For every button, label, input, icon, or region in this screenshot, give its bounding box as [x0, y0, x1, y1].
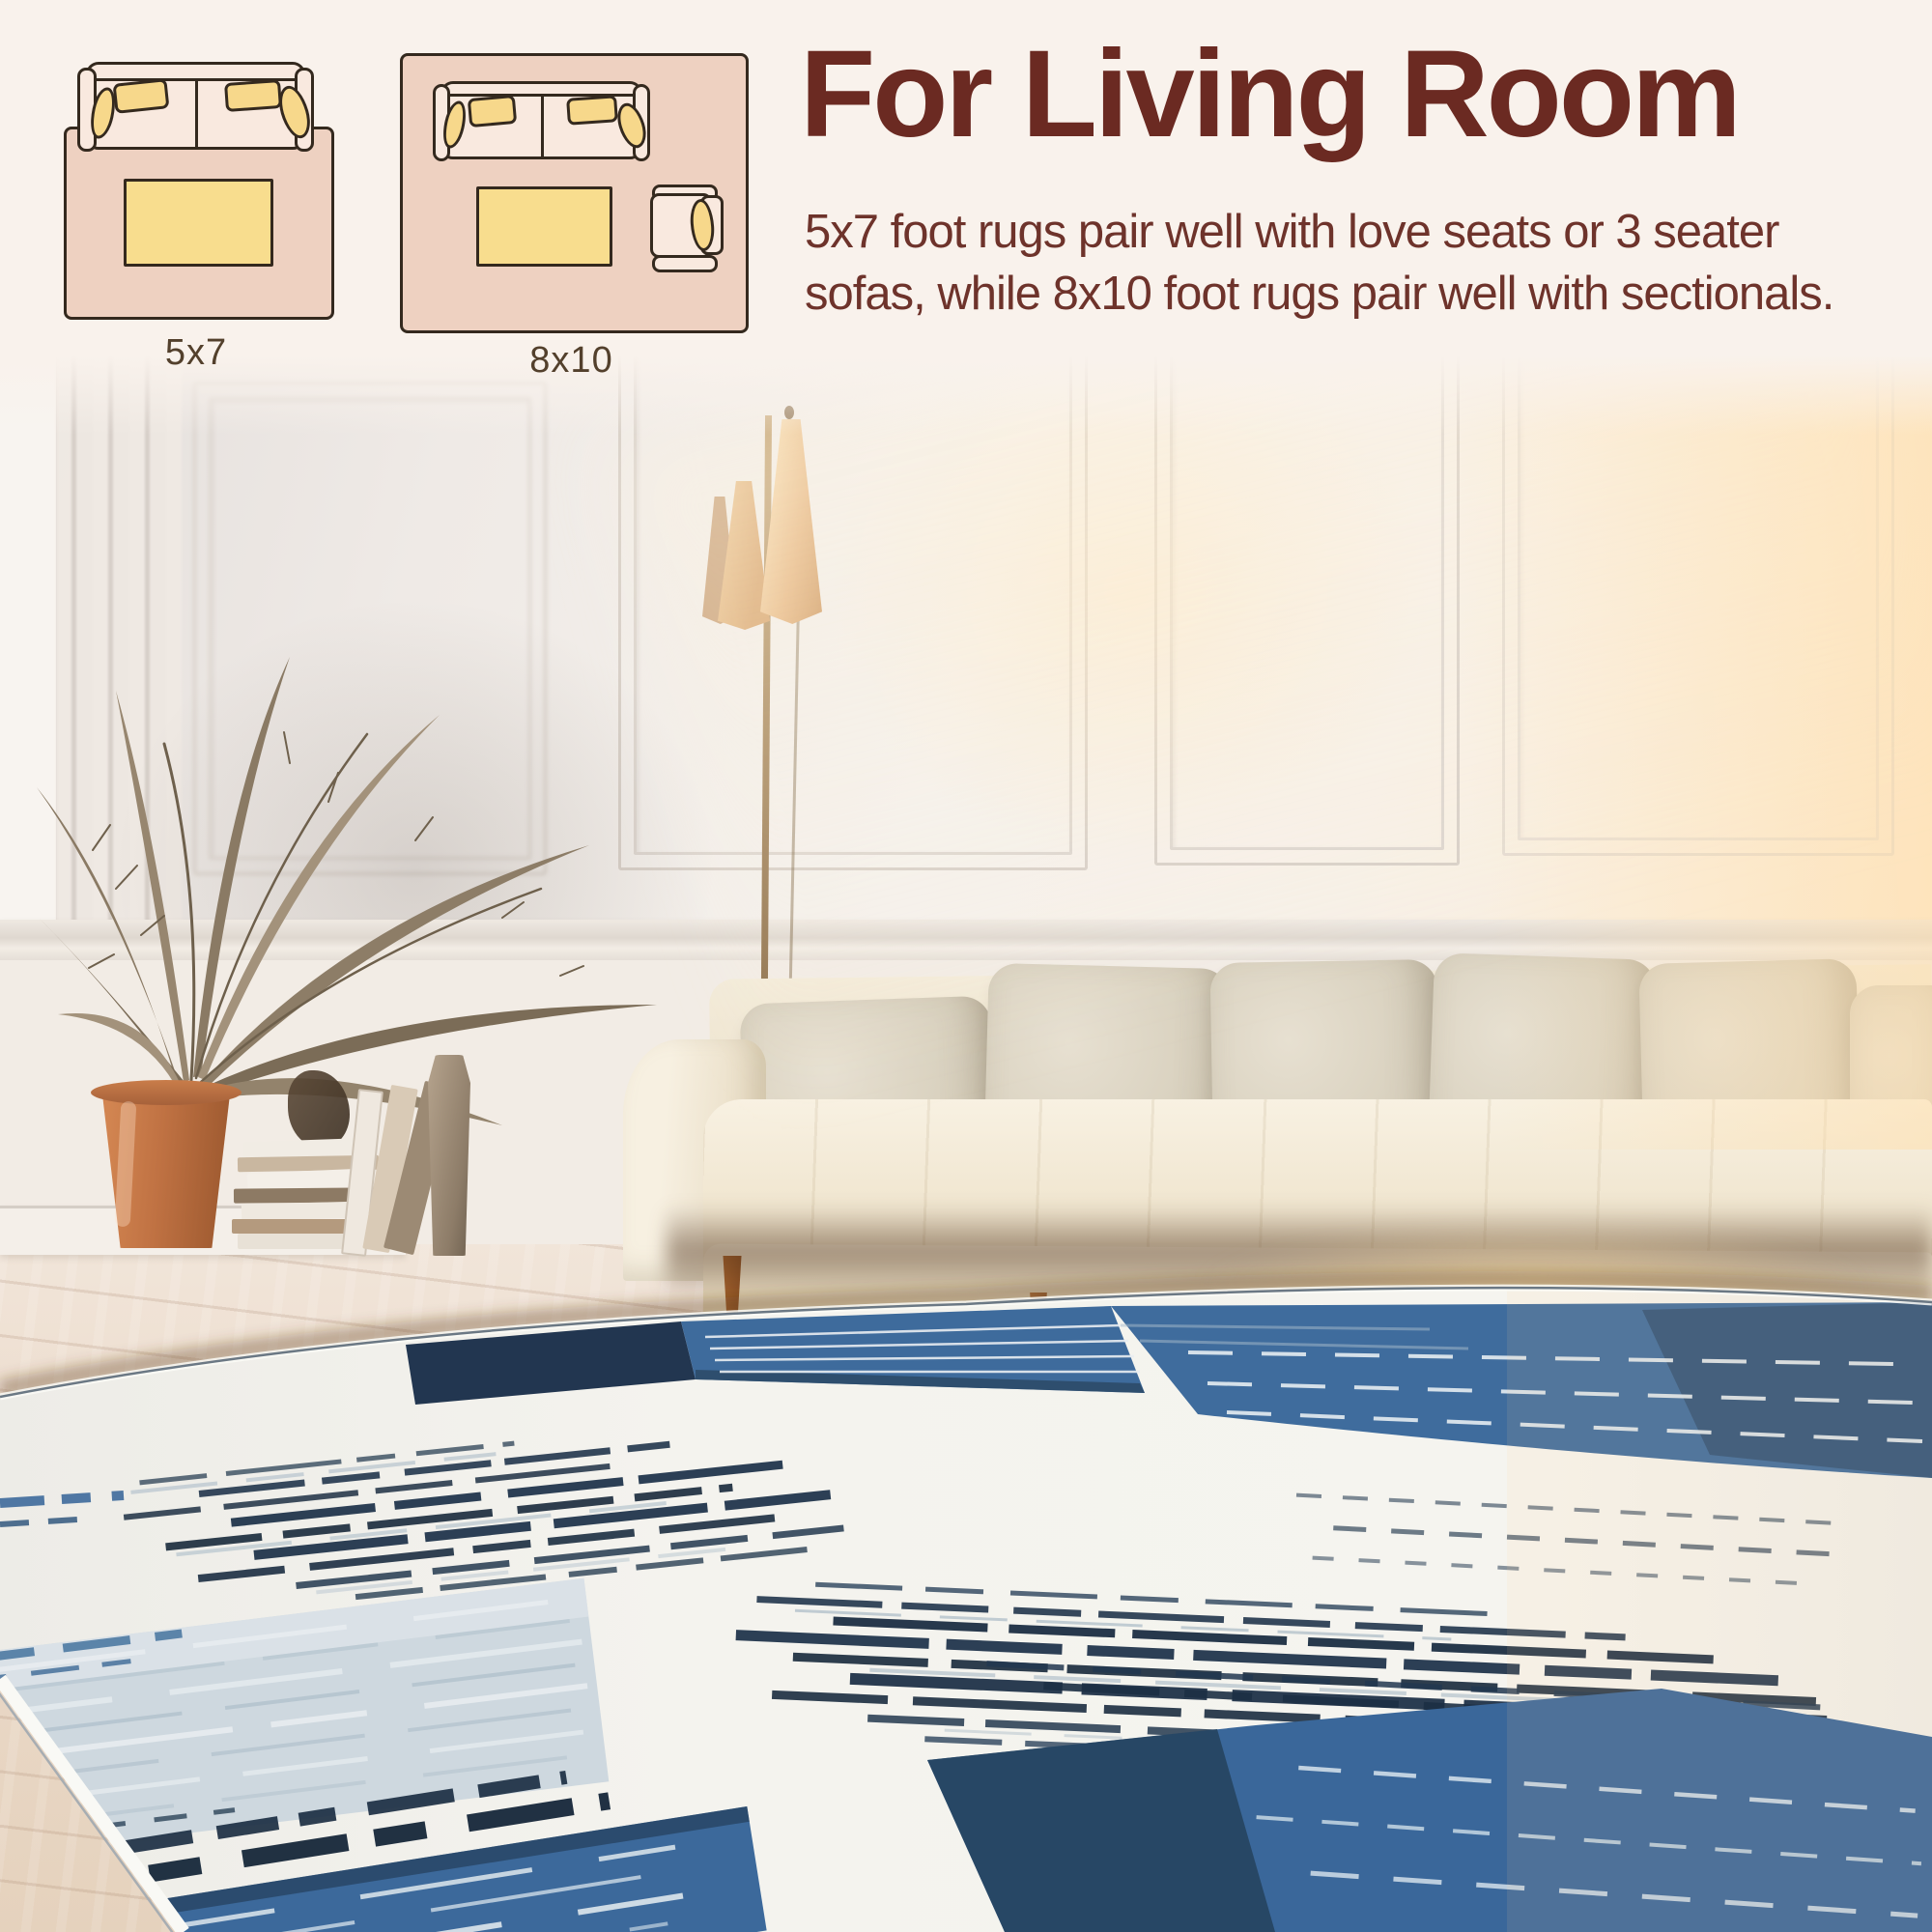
description-line-1: 5x7 foot rugs pair well with love seats … [805, 205, 1778, 259]
diagram-pillow [224, 79, 282, 112]
diagram-pillow [566, 95, 618, 126]
diagram-label-8x10: 8x10 [400, 340, 743, 382]
diagram-pillow [113, 78, 170, 114]
page-title: For Living Room [800, 27, 1901, 163]
diagram-coffee-table [476, 186, 612, 267]
description-line-2: sofas, while 8x10 foot rugs pair well wi… [805, 267, 1833, 321]
diagram-coffee-table [124, 179, 273, 267]
diagram-pillow [468, 95, 517, 128]
header-band: 5x7 8x10 [0, 0, 1932, 435]
diagram-armchair [650, 185, 724, 271]
product-infographic: 5x7 8x10 [0, 0, 1932, 1932]
diagram-sofa [77, 62, 314, 152]
diagram-label-5x7: 5x7 [64, 332, 328, 374]
diagram-sofa [433, 81, 650, 161]
rug-warm-light [1507, 1275, 1932, 1932]
